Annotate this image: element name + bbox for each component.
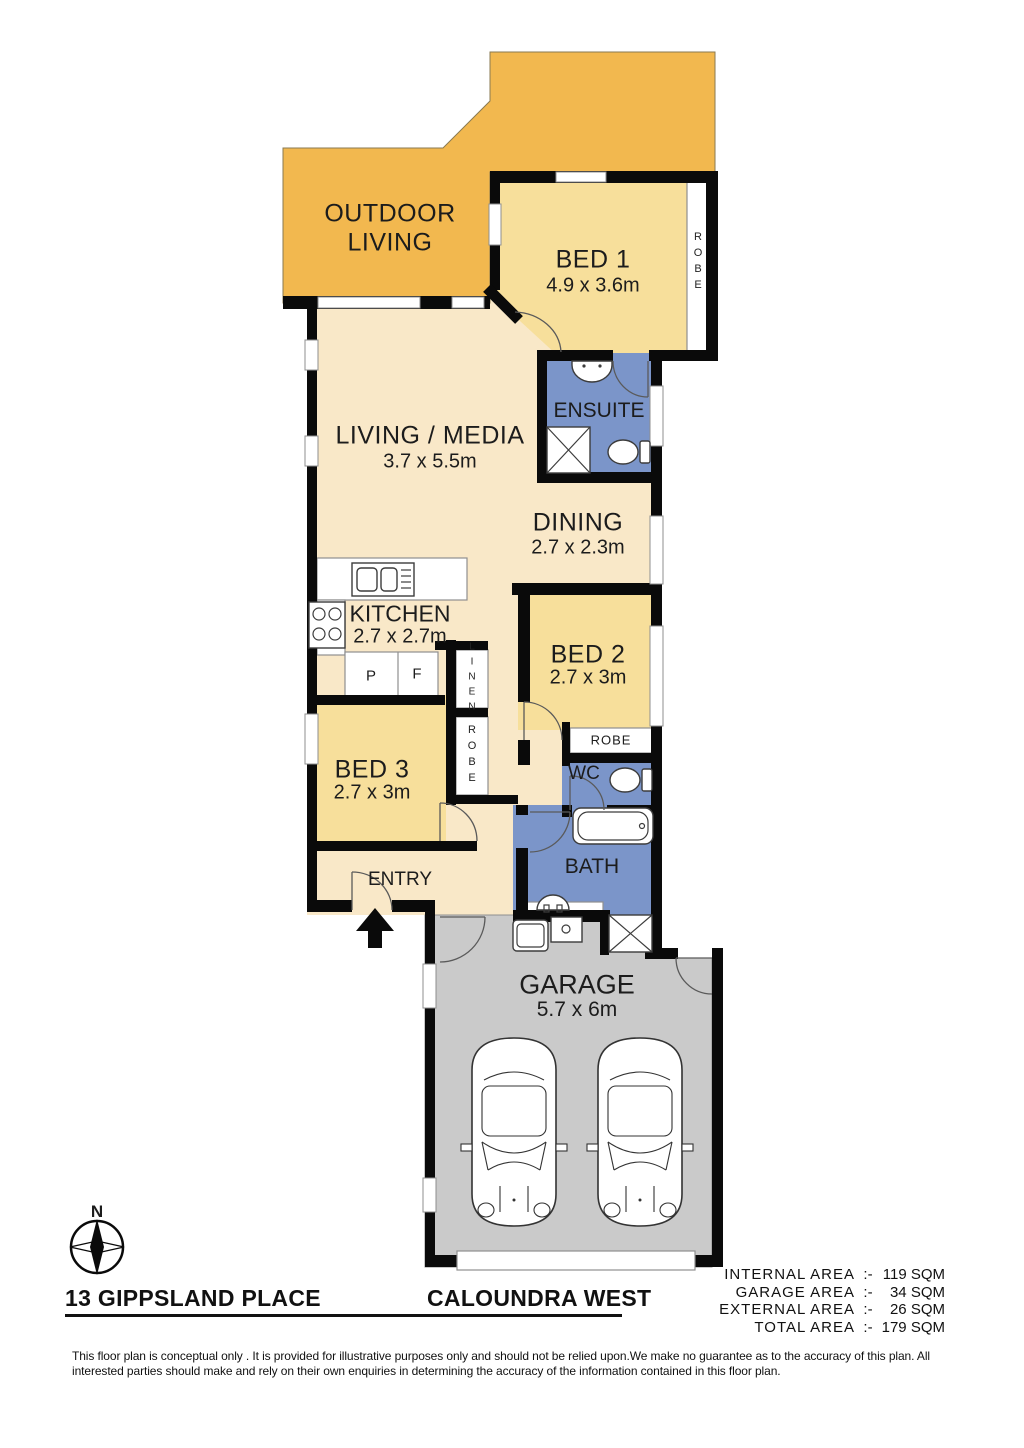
label-entry: ENTRY: [368, 869, 432, 891]
label-garage: GARAGE: [519, 970, 635, 1001]
compass-north-label: N: [91, 1202, 103, 1222]
kitchen-sink-icon: [352, 563, 414, 596]
area-label: TOTAL AREA: [754, 1319, 855, 1337]
area-label: GARAGE AREA: [736, 1284, 855, 1302]
label-kitchen-dims: 2.7 x 2.7m: [353, 626, 446, 649]
label-linen: LINEN: [467, 642, 478, 717]
label-wc: WC: [568, 763, 600, 785]
label-outdoor-living: OUTDOOR LIVING: [305, 199, 475, 257]
label-living: LIVING / MEDIA: [336, 422, 525, 451]
label-bath: BATH: [565, 855, 619, 879]
area-label: EXTERNAL AREA: [719, 1301, 855, 1319]
label-bed2: BED 2: [551, 641, 626, 670]
label-bed1-dims: 4.9 x 3.6m: [546, 275, 639, 298]
bathtub-icon: [573, 808, 653, 844]
label-ensuite: ENSUITE: [553, 399, 644, 423]
floorplan-drawing: [0, 0, 1024, 1448]
label-bed3: BED 3: [335, 756, 410, 785]
label-kitchen: KITCHEN: [350, 601, 451, 628]
label-dining: DINING: [533, 509, 624, 538]
label-living-dims: 3.7 x 5.5m: [383, 451, 476, 474]
garage-door-panel: [457, 1251, 695, 1270]
disclaimer-text: This floor plan is conceptual only . It …: [72, 1349, 960, 1378]
area-value: 26 SQM: [881, 1301, 945, 1319]
pantry-fridge-space: [345, 652, 438, 698]
area-label: INTERNAL AREA: [724, 1266, 855, 1284]
car-right-icon: [587, 1038, 693, 1226]
label-fridge: F: [412, 666, 421, 683]
area-separator: :-: [855, 1284, 881, 1302]
ensuite-toilet-icon: [608, 440, 650, 464]
label-robe-bed1: ROBE: [692, 231, 704, 295]
cooktop-icon: [309, 602, 345, 648]
label-robe-bed3: ROBE: [466, 724, 478, 788]
area-row-garage: GARAGE AREA :- 34 SQM: [719, 1284, 945, 1302]
label-robe-bed2: ROBE: [591, 733, 632, 748]
area-row-internal: INTERNAL AREA :- 119 SQM: [719, 1266, 945, 1284]
compass-icon: [70, 1219, 124, 1275]
label-pantry: P: [366, 668, 376, 685]
label-bed1: BED 1: [556, 246, 631, 275]
label-garage-dims: 5.7 x 6m: [537, 998, 618, 1022]
label-bed2-dims: 2.7 x 3m: [550, 667, 627, 690]
area-separator: :-: [855, 1319, 881, 1337]
area-summary: INTERNAL AREA :- 119 SQM GARAGE AREA :- …: [719, 1266, 945, 1336]
car-left-icon: [461, 1038, 567, 1226]
area-separator: :-: [855, 1301, 881, 1319]
area-row-total: TOTAL AREA :- 179 SQM: [719, 1319, 945, 1337]
wc-toilet-icon: [610, 768, 652, 792]
area-separator: :-: [855, 1266, 881, 1284]
label-dining-dims: 2.7 x 2.3m: [531, 537, 624, 560]
hot-water-recess-icon: [609, 915, 652, 952]
address-suburb: CALOUNDRA WEST: [427, 1285, 651, 1312]
floorplan-canvas: OUTDOOR LIVING BED 1 4.9 x 3.6m ENSUITE …: [0, 0, 1024, 1448]
area-value: 119 SQM: [881, 1266, 945, 1284]
laundry-tub-icon: [551, 917, 582, 942]
ensuite-shower-icon: [547, 427, 590, 473]
washing-machine-icon: [513, 920, 548, 951]
area-row-external: EXTERNAL AREA :- 26 SQM: [719, 1301, 945, 1319]
area-value: 179 SQM: [881, 1319, 945, 1337]
area-value: 34 SQM: [881, 1284, 945, 1302]
address-street: 13 GIPPSLAND PLACE: [65, 1285, 321, 1312]
label-bed3-dims: 2.7 x 3m: [334, 782, 411, 805]
address-underline: [65, 1314, 622, 1317]
